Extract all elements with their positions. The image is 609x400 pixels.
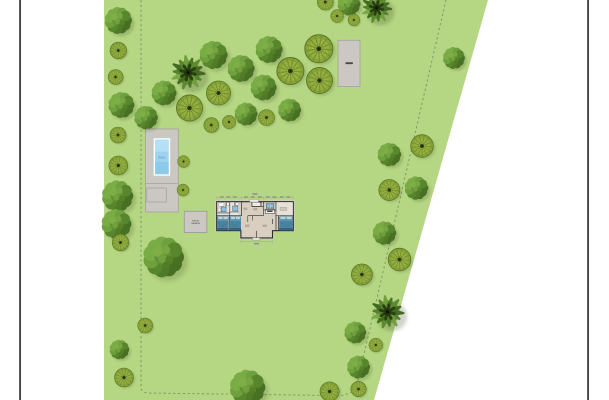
svg-text:POOL: POOL bbox=[159, 157, 166, 160]
svg-text:METAL: METAL bbox=[192, 219, 200, 222]
svg-text:GARAGE: GARAGE bbox=[191, 222, 201, 225]
